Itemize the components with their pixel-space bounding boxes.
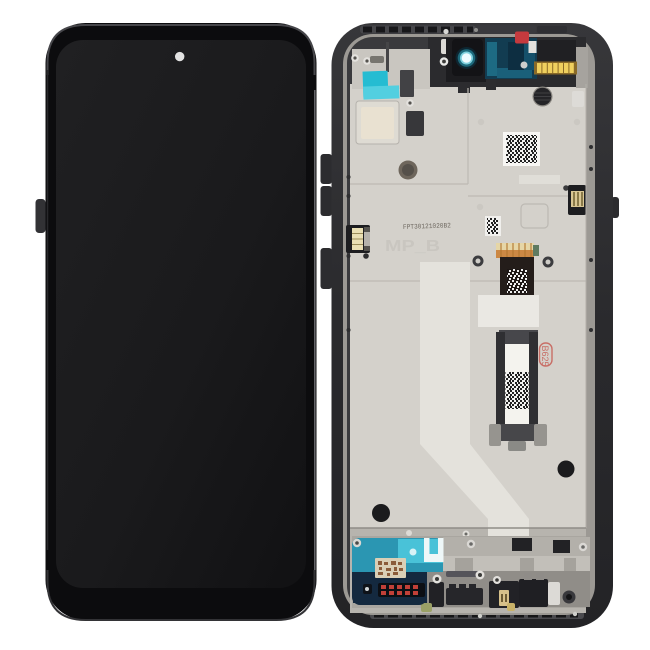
svg-text:MP_B: MP_B [385, 238, 440, 255]
svg-text:B625: B625 [540, 346, 550, 367]
svg-text:FPT30121020B2: FPT30121020B2 [403, 222, 451, 232]
